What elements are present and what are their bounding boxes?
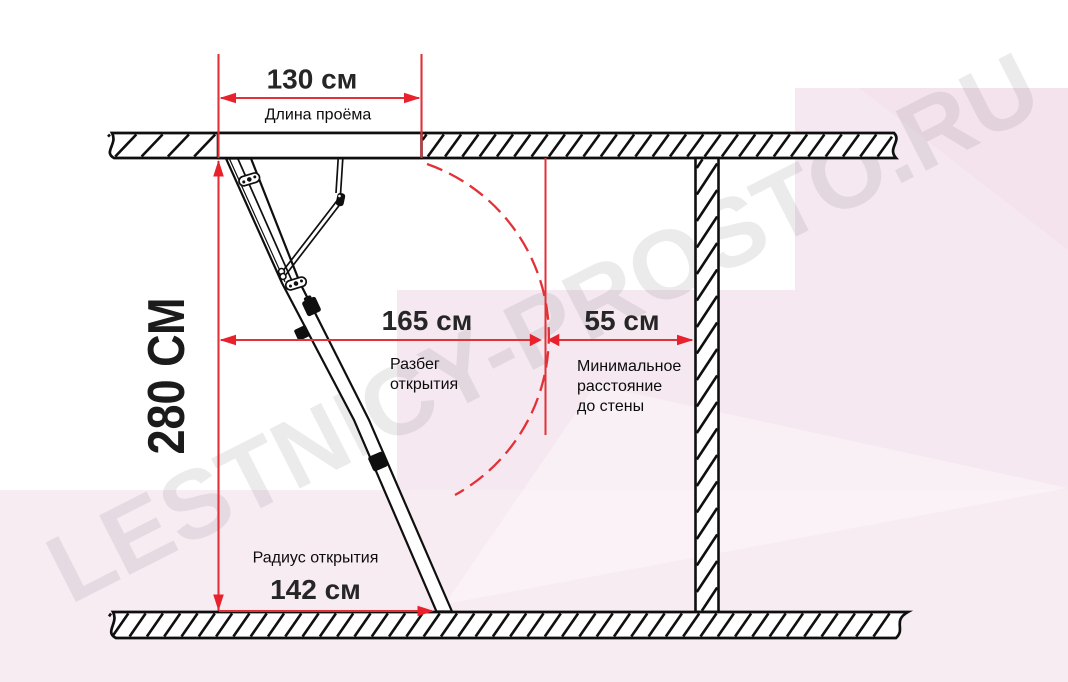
svg-text:165 см: 165 см: [382, 305, 473, 336]
svg-text:Разбег: Разбег: [390, 356, 440, 373]
svg-text:55 см: 55 см: [584, 305, 659, 336]
svg-text:открытия: открытия: [390, 376, 458, 393]
svg-text:142 см: 142 см: [270, 574, 361, 605]
svg-text:Минимальное: Минимальное: [577, 358, 681, 375]
svg-text:130 см: 130 см: [267, 64, 358, 95]
svg-text:до стены: до стены: [577, 398, 644, 415]
svg-text:Длина проёма: Длина проёма: [265, 107, 372, 124]
svg-text:280 СМ: 280 СМ: [138, 298, 196, 455]
svg-text:расстояние: расстояние: [577, 378, 662, 395]
svg-text:Радиус открытия: Радиус открытия: [253, 550, 379, 567]
